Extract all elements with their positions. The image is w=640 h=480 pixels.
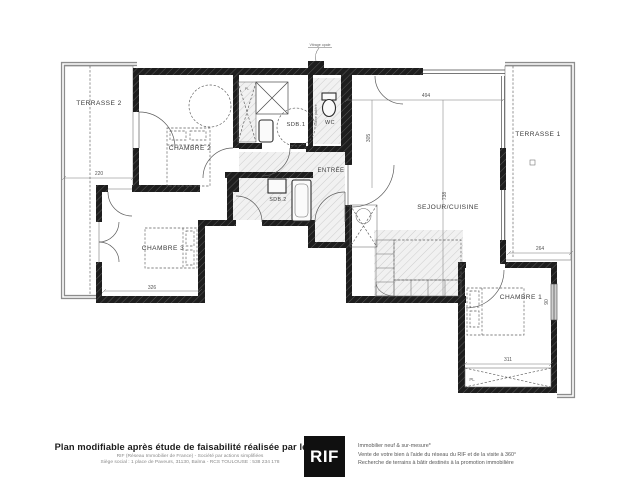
- sdb1-placard-label: PL: [245, 87, 249, 91]
- footer-service-3: Recherche de terrains à bâtir destinés à…: [358, 460, 628, 466]
- sejour-width-dim: 494: [422, 93, 431, 99]
- vitrage-note: Vitrage opale: [309, 43, 330, 47]
- footer-service-1: Immobilier neuf & sur-mesure*: [358, 443, 628, 449]
- floor-plan-svg: TERRASSE 2 220 TERRASSE 1 264: [0, 0, 640, 432]
- floor-plan-page: TERRASSE 2 220 TERRASSE 1 264: [0, 0, 640, 480]
- chambre-1-placard-label: PL: [469, 377, 475, 382]
- footer-company-line: RIF (Réseau Immobilier de France) - Soci…: [40, 454, 340, 459]
- chambre-3-dim: 326: [148, 285, 157, 291]
- footer-right: Immobilier neuf & sur-mesure* Vente de v…: [358, 443, 628, 469]
- chambre-1-window-dim: 90: [544, 299, 550, 305]
- entree-depth-dim: 305: [366, 134, 372, 143]
- sdb2-label: SDB.2: [269, 197, 286, 203]
- rif-logo-text: RIF: [310, 447, 339, 467]
- footer-headline: Plan modifiable après étude de faisabili…: [40, 442, 340, 452]
- sejour-depth-dim: 738: [442, 192, 448, 201]
- chambre-1-label: CHAMBRE 1: [500, 294, 543, 301]
- footer-address-line: Siège social : 1 place de Paveurs, 31130…: [40, 460, 340, 465]
- terrasse-2-dim: 220: [95, 171, 104, 177]
- terrasse-1-label: TERRASSE 1: [515, 131, 561, 138]
- sejour-label: SEJOUR/CUISINE: [417, 204, 479, 211]
- entree-label: ENTRÉE: [317, 167, 344, 174]
- terrasse-2-label: TERRASSE 2: [76, 100, 122, 107]
- rif-logo: RIF: [304, 436, 345, 477]
- gaine-note: Gaine palière: [314, 104, 318, 125]
- chambre-1-dim: 311: [504, 357, 512, 363]
- chambre-3-label: CHAMBRE 3: [142, 245, 185, 252]
- terrasse-1-dim: 264: [536, 246, 545, 252]
- wc-label: WC: [325, 120, 335, 126]
- chambre-2-label: CHAMBRE 2: [169, 145, 212, 152]
- footer-left: Plan modifiable après étude de faisabili…: [40, 442, 340, 465]
- footer-service-2: Vente de votre bien à l'aide du réseau d…: [358, 452, 628, 458]
- sdb1-label: SDB.1: [286, 122, 305, 128]
- footer: Plan modifiable après étude de faisabili…: [0, 430, 640, 480]
